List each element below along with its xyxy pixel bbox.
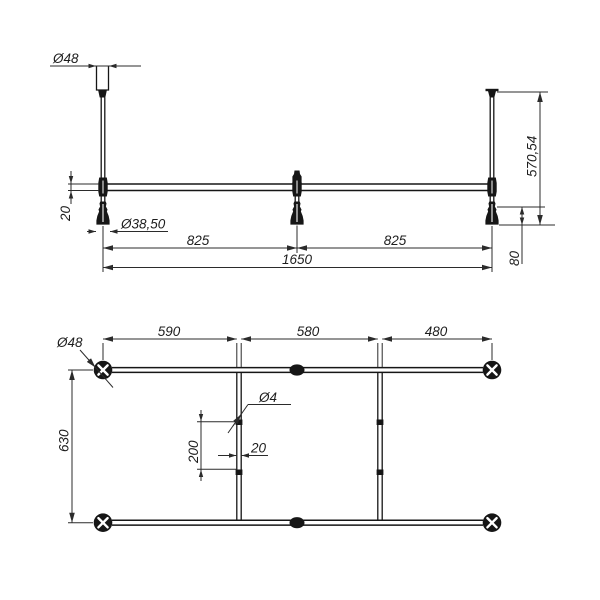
dim-label: 570,54 bbox=[525, 136, 540, 177]
dim-label: 630 bbox=[57, 429, 72, 452]
center-foot bbox=[290, 197, 303, 225]
dim-rail-height: 20 bbox=[58, 171, 99, 222]
elevation-right-support bbox=[485, 90, 498, 225]
plan-center-connector-top bbox=[290, 364, 305, 375]
cup-neck bbox=[98, 90, 107, 98]
dim-span-right: 825 bbox=[297, 233, 492, 248]
plan-view bbox=[94, 361, 502, 532]
elevation-left-support bbox=[96, 66, 109, 225]
dim-label: 1650 bbox=[282, 252, 313, 267]
right-post bbox=[490, 98, 494, 178]
dim-span-left: 825 bbox=[103, 233, 297, 248]
dim-label: 480 bbox=[425, 324, 448, 339]
plan-center-connector-bottom bbox=[290, 517, 305, 528]
elevation-dimensions: Ø48 20 Ø38,50 825 825 1650 bbox=[50, 51, 555, 272]
right-foot bbox=[485, 197, 498, 225]
flange-bottom-right bbox=[483, 513, 502, 532]
left-foot bbox=[96, 197, 109, 225]
dim-label: 825 bbox=[187, 233, 210, 248]
flange-bottom-left bbox=[94, 513, 113, 532]
dim-bay-middle: 580 bbox=[241, 324, 378, 339]
dim-bay-left: 590 bbox=[103, 324, 237, 339]
dim-label: 20 bbox=[58, 205, 73, 222]
dim-label: 200 bbox=[186, 440, 201, 464]
dim-bar-width: 20 bbox=[218, 441, 268, 456]
dim-depth: 630 bbox=[57, 370, 94, 523]
dim-label: 590 bbox=[158, 324, 181, 339]
flange-neck bbox=[488, 91, 496, 98]
dim-label: Ø48 bbox=[56, 335, 83, 350]
ceiling-cup bbox=[97, 66, 109, 90]
left-rail-connector bbox=[98, 178, 107, 197]
dim-label: 580 bbox=[297, 324, 320, 339]
dim-span-total: 1650 bbox=[103, 252, 492, 268]
dim-label: 20 bbox=[250, 441, 267, 456]
bay-extension-lines bbox=[103, 343, 492, 367]
dim-cap-diameter: Ø48 bbox=[50, 51, 141, 66]
drawing-canvas: Ø48 20 Ø38,50 825 825 1650 bbox=[0, 0, 600, 600]
dim-rod-length: 200 bbox=[186, 410, 237, 481]
center-rail-connector bbox=[292, 178, 301, 197]
plan-left-crossbar bbox=[236, 372, 243, 520]
dim-label: Ø38,50 bbox=[120, 217, 166, 232]
plan-right-crossbar bbox=[377, 372, 384, 520]
dim-foot-drop: 80 bbox=[497, 207, 545, 266]
dim-label: Ø4 bbox=[258, 390, 277, 405]
dim-label: 825 bbox=[384, 233, 407, 248]
flange-top-right bbox=[483, 361, 502, 380]
dim-label: 80 bbox=[507, 250, 522, 266]
dim-bay-right: 480 bbox=[382, 324, 492, 339]
dim-overall-height: 570,54 bbox=[497, 92, 555, 225]
plan-dimensions: 590 580 480 Ø48 630 Ø4 bbox=[56, 324, 492, 523]
elevation-center-support bbox=[290, 171, 303, 254]
right-rail-connector bbox=[487, 178, 496, 197]
left-post bbox=[101, 98, 105, 178]
dim-label: Ø48 bbox=[52, 51, 79, 66]
technical-drawing: Ø48 20 Ø38,50 825 825 1650 bbox=[0, 0, 600, 600]
